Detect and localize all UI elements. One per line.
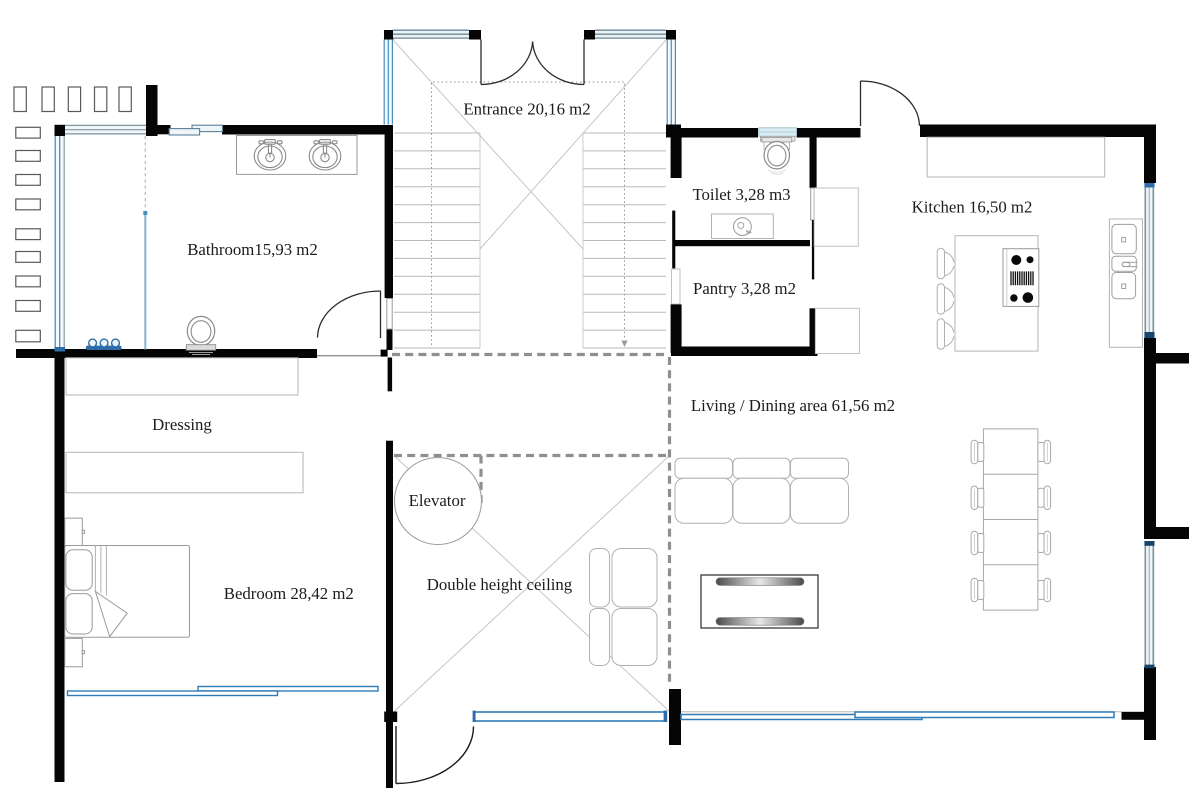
- svg-text:Pantry 3,28 m2: Pantry 3,28 m2: [693, 279, 796, 298]
- svg-text:Elevator: Elevator: [409, 491, 466, 510]
- svg-text:Entrance 20,16 m2: Entrance 20,16 m2: [463, 100, 590, 119]
- svg-text:Kitchen 16,50 m2: Kitchen 16,50 m2: [912, 198, 1033, 217]
- svg-text:Bedroom 28,42 m2: Bedroom 28,42 m2: [224, 584, 354, 603]
- svg-text:Living / Dining area 61,56 m2: Living / Dining area 61,56 m2: [691, 396, 895, 415]
- svg-text:Dressing: Dressing: [152, 415, 212, 434]
- svg-text:Bathroom15,93 m2: Bathroom15,93 m2: [187, 240, 318, 259]
- svg-text:Toilet 3,28 m3: Toilet 3,28 m3: [692, 185, 790, 204]
- svg-text:Double height ceiling: Double height ceiling: [427, 575, 573, 594]
